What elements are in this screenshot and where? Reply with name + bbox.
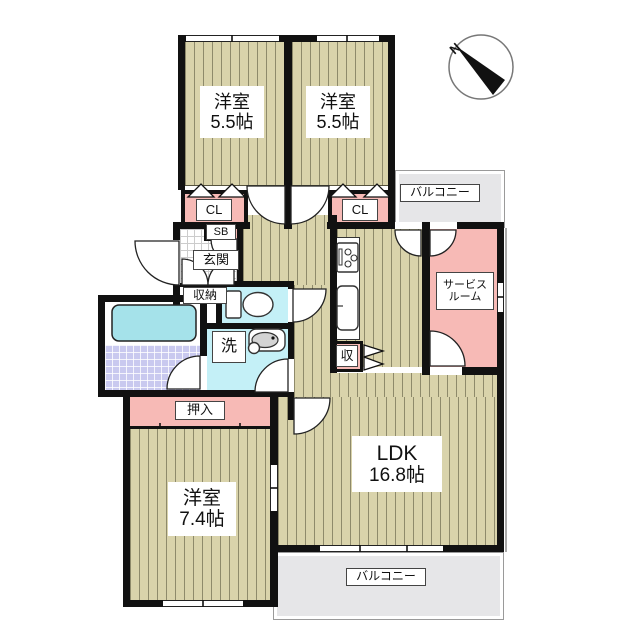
bedroom1-name: 洋室 bbox=[214, 92, 250, 112]
entrance-door-opening bbox=[173, 240, 180, 285]
floor-plan: N 洋室 5.5帖 洋室 5.5帖 CL CL バルコニー SB 玄関 収納 洗… bbox=[0, 0, 640, 640]
balcony-bottom-label: バルコニー bbox=[346, 568, 426, 586]
bedroom2-name: 洋室 bbox=[320, 92, 356, 112]
wall bbox=[497, 222, 504, 552]
oshiire-divider-line bbox=[130, 426, 270, 429]
bath-door-opening bbox=[200, 356, 207, 390]
washroom-text: 洗 bbox=[221, 338, 237, 356]
north-arrow-icon bbox=[456, 46, 505, 95]
wall bbox=[98, 390, 294, 397]
pantry-text: 収 bbox=[340, 349, 353, 364]
washroom-label: 洗 bbox=[212, 331, 246, 363]
wall bbox=[123, 397, 130, 607]
bedroom2-size: 5.5帖 bbox=[316, 112, 359, 132]
pantry-label: 収 bbox=[336, 345, 358, 367]
toilet-room-floor bbox=[222, 287, 288, 323]
oshiire-label: 押入 bbox=[175, 401, 225, 420]
oshiire-text: 押入 bbox=[187, 403, 213, 418]
wall bbox=[173, 229, 180, 240]
bedroom3-label: 洋室 7.4帖 bbox=[168, 482, 236, 536]
bedroom1-label: 洋室 5.5帖 bbox=[200, 86, 264, 138]
building-outline-right bbox=[505, 228, 507, 552]
bedroom1-window bbox=[186, 35, 279, 42]
closet2-label: CL bbox=[342, 199, 378, 221]
north-label: N bbox=[446, 40, 463, 57]
wall bbox=[288, 397, 294, 420]
washroom-door-opening bbox=[288, 359, 294, 392]
shoe-box-text: SB bbox=[214, 226, 229, 238]
closet2-text: CL bbox=[352, 203, 369, 218]
bedroom1-size: 5.5帖 bbox=[210, 112, 253, 132]
entrance-label: 玄関 bbox=[193, 250, 239, 270]
bedroom3-size: 7.4帖 bbox=[179, 509, 224, 530]
bedroom2-label: 洋室 5.5帖 bbox=[306, 86, 370, 138]
wall bbox=[388, 35, 395, 229]
wall bbox=[178, 35, 185, 190]
storage-text: 収納 bbox=[193, 289, 217, 302]
ldk-upper-floor bbox=[294, 373, 497, 397]
wall bbox=[422, 222, 430, 373]
service-room-label: サービス ルーム bbox=[436, 272, 494, 310]
toilet-door-opening bbox=[288, 289, 294, 322]
wall bbox=[200, 295, 207, 356]
ldk-balcony-window bbox=[320, 545, 443, 552]
kitchen-counter bbox=[334, 237, 360, 340]
wall bbox=[200, 323, 294, 329]
service-room-window bbox=[497, 283, 504, 312]
wall bbox=[216, 281, 294, 287]
closet1-label: CL bbox=[196, 199, 232, 221]
balcony-door-opening-right bbox=[430, 222, 457, 229]
service-room-text-1: サービス bbox=[443, 279, 487, 291]
wall bbox=[98, 295, 105, 397]
service-room-text-2: ルーム bbox=[449, 291, 482, 303]
service-room-door-opening bbox=[430, 367, 462, 375]
balcony-top-label: バルコニー bbox=[400, 184, 480, 202]
ldk-label: LDK 16.8帖 bbox=[352, 436, 442, 492]
bedroom3-side-window bbox=[270, 465, 278, 511]
bathroom-tile bbox=[105, 345, 200, 390]
balcony-bottom-text: バルコニー bbox=[356, 570, 416, 583]
storage-label: 収納 bbox=[183, 287, 227, 304]
bedroom2-window bbox=[317, 35, 379, 42]
balcony-door-opening-left bbox=[395, 222, 422, 229]
wall bbox=[284, 35, 292, 229]
balcony-bottom-area bbox=[273, 552, 504, 620]
closet1-text: CL bbox=[206, 203, 223, 218]
balcony-top-text: バルコニー bbox=[410, 186, 470, 199]
north-compass: N bbox=[446, 35, 513, 99]
entrance-text: 玄関 bbox=[203, 253, 229, 268]
bedroom3-window bbox=[163, 600, 243, 607]
shoe-box-label: SB bbox=[206, 224, 236, 240]
ldk-name: LDK bbox=[377, 442, 418, 466]
bedroom3-name: 洋室 bbox=[183, 488, 221, 509]
ldk-size: 16.8帖 bbox=[369, 465, 425, 486]
